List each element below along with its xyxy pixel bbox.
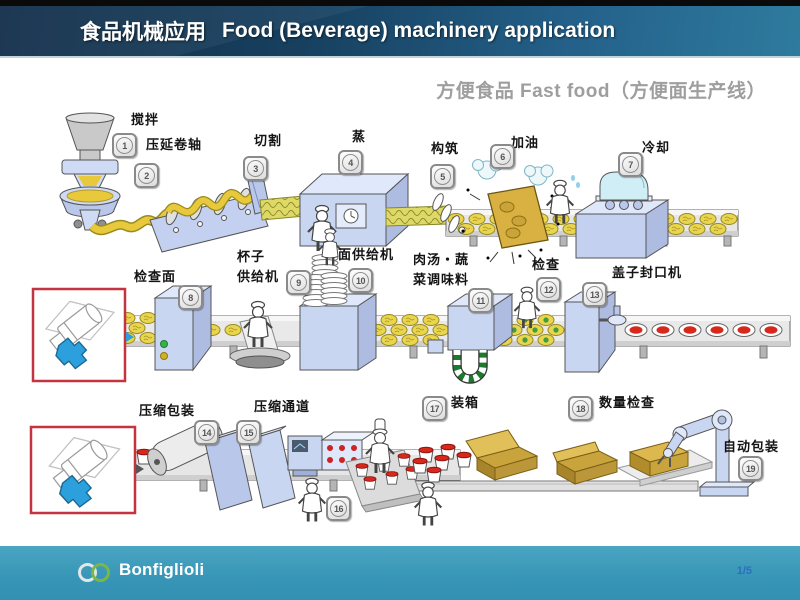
station-label-7: 冷却	[642, 138, 670, 158]
station-badge-6: 6	[490, 144, 515, 169]
station-label-4: 蒸	[352, 127, 366, 147]
station-label-1: 搅拌	[131, 110, 159, 130]
station-badge-11: 11	[468, 288, 493, 313]
station-badge-8: 8	[178, 285, 203, 310]
row3-closing-carton	[553, 442, 617, 484]
station-label-3: 切割	[254, 131, 282, 151]
station-badge-7: 7	[618, 152, 643, 177]
station-label-19: 自动包装	[723, 437, 779, 457]
slide: 食品机械应用 Food (Beverage) machinery applica…	[0, 0, 800, 600]
station-badge-19: 19	[738, 456, 763, 481]
station-badge-4: 4	[338, 150, 363, 175]
page-number: 1/5	[737, 565, 752, 577]
gearmotor-inset-1	[33, 289, 134, 381]
gearmotor-inset-2	[31, 427, 144, 513]
station-label-6: 加油	[511, 133, 539, 153]
station-label-17: 装箱	[451, 393, 479, 413]
station-badge-18: 18	[568, 396, 593, 421]
production-line-diagram	[0, 0, 800, 600]
station-label-14: 压缩包装	[139, 401, 195, 421]
row1-rolling-machine	[150, 187, 268, 252]
bonfiglioli-rings-icon	[78, 560, 112, 580]
station-label-5: 构筑	[431, 139, 459, 159]
station-label-15: 压缩通道	[254, 397, 310, 417]
station-label-10: 面供给机	[338, 245, 394, 265]
station-badge-16: 16	[326, 496, 351, 521]
row3-open-carton	[466, 430, 537, 480]
brand-name: Bonfiglioli	[119, 560, 204, 580]
station-badge-9: 9	[286, 270, 311, 295]
station-label-8: 检查面	[134, 267, 176, 287]
station-label-13: 盖子封口机	[612, 263, 682, 283]
station-badge-14: 14	[194, 420, 219, 445]
station-badge-15: 15	[236, 420, 261, 445]
station-label-2: 压延卷轴	[146, 135, 202, 155]
station-label-12: 检查	[532, 255, 560, 275]
station-label-18: 数量检查	[599, 393, 655, 413]
station-label-9: 杯子 供给机	[237, 247, 279, 287]
bonfiglioli-logo: Bonfiglioli	[78, 560, 204, 580]
station-badge-2: 2	[134, 163, 159, 188]
station-badge-17: 17	[422, 396, 447, 421]
row3-sealed-carton-on-pallet	[618, 442, 712, 486]
station-badge-1: 1	[112, 133, 137, 158]
station-badge-10: 10	[348, 268, 373, 293]
station-badge-3: 3	[243, 156, 268, 181]
station-badge-5: 5	[430, 164, 455, 189]
station-label-11: 肉汤・蔬 菜调味料	[413, 250, 469, 290]
station-badge-13: 13	[582, 282, 607, 307]
station-badge-12: 12	[536, 277, 561, 302]
row1-steam-box	[300, 174, 448, 251]
row1-cooling-machine	[576, 172, 668, 258]
